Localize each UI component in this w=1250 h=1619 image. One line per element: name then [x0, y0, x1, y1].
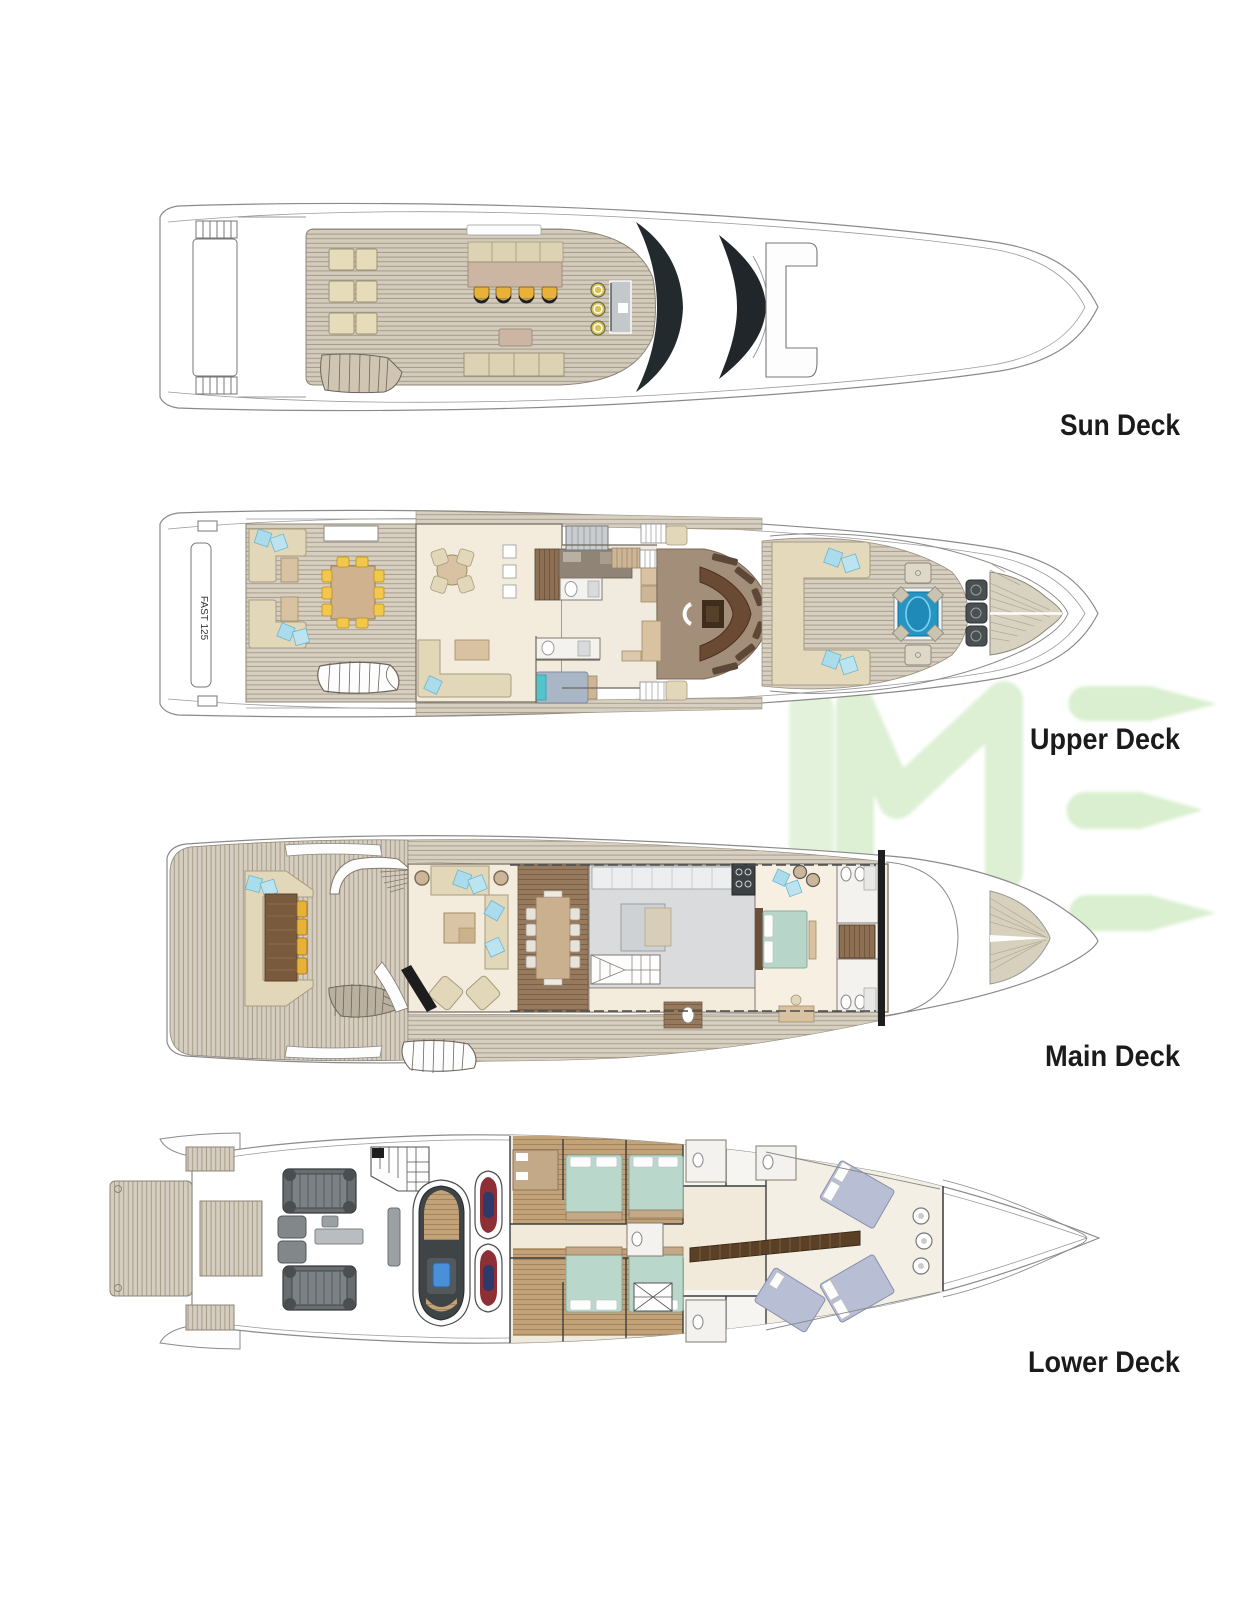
svg-text:FAST 125: FAST 125: [198, 596, 209, 641]
svg-text:Sun Deck: Sun Deck: [1060, 409, 1180, 442]
svg-text:Main Deck: Main Deck: [1045, 1040, 1180, 1073]
svg-text:Lower Deck: Lower Deck: [1028, 1346, 1180, 1379]
svg-text:Upper Deck: Upper Deck: [1030, 723, 1180, 756]
